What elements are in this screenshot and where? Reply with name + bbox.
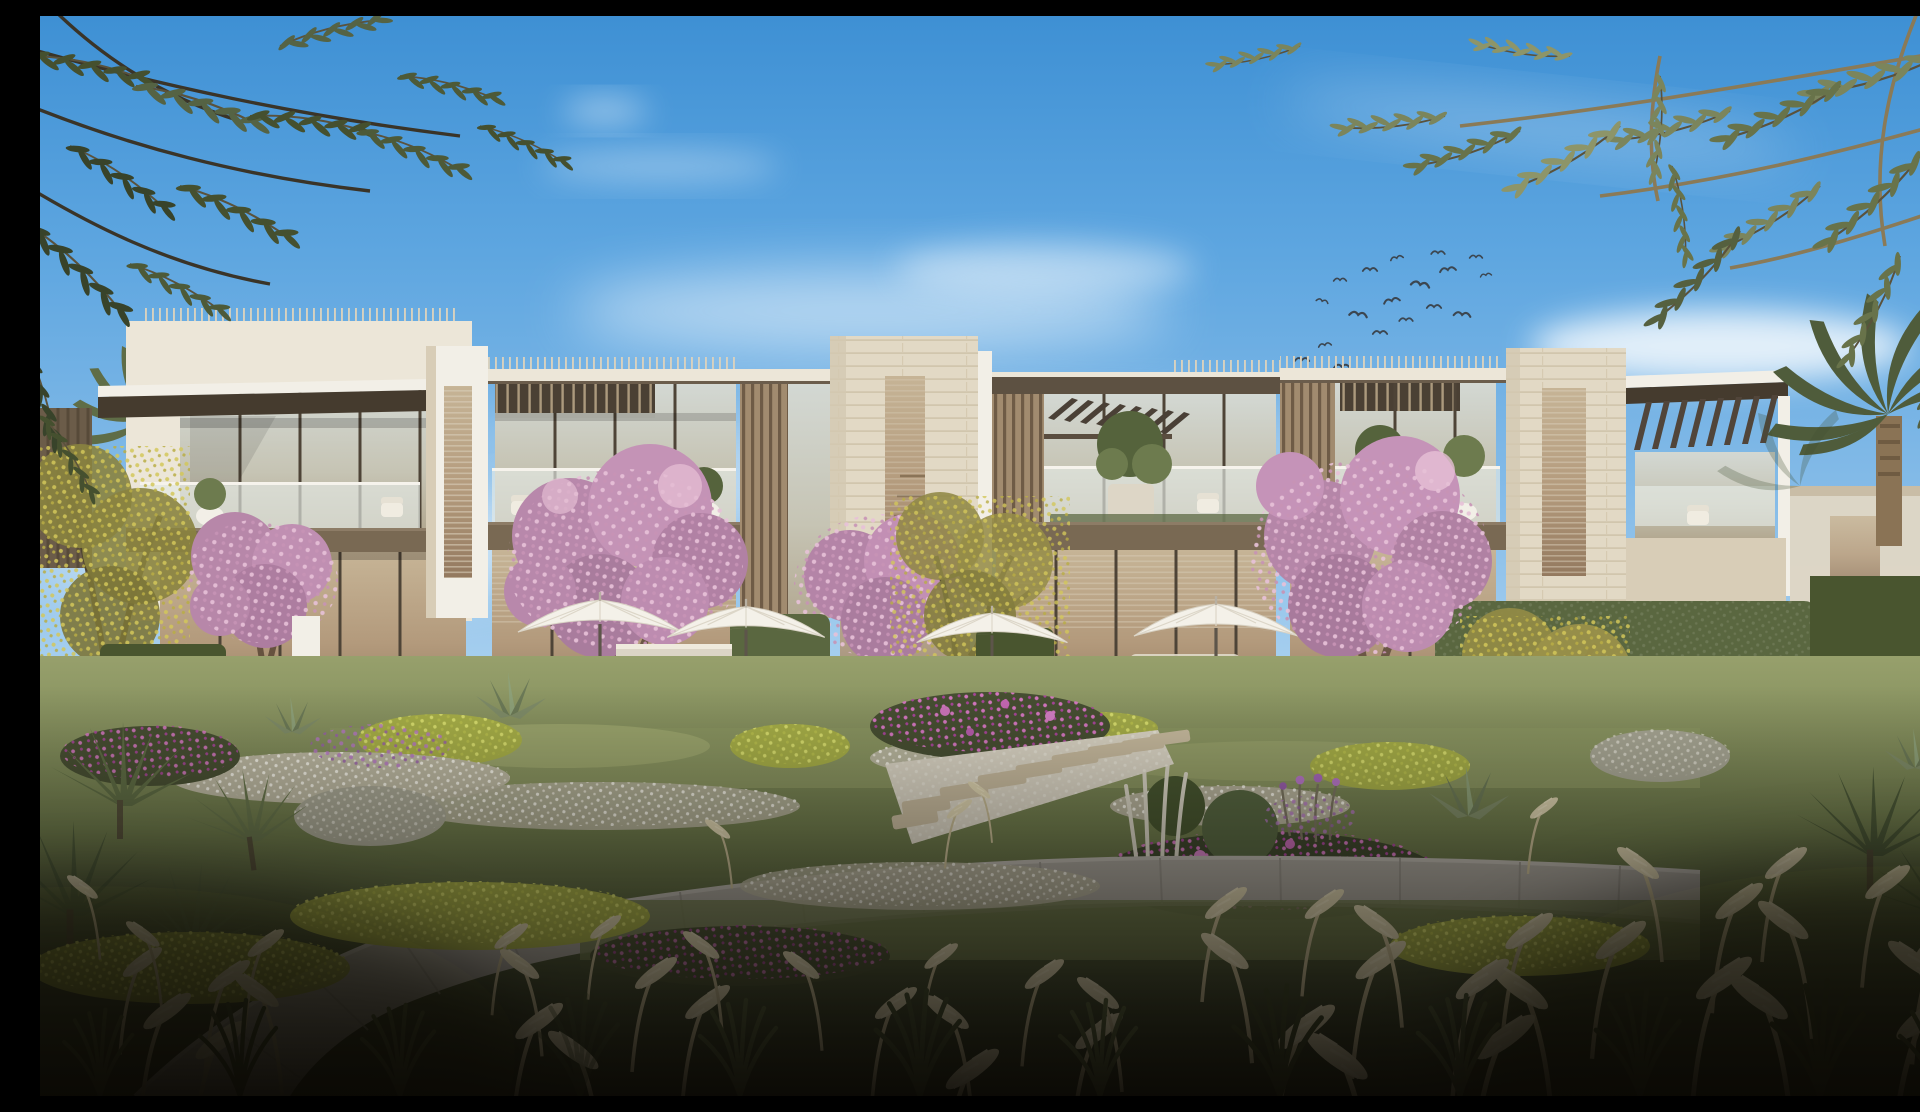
- vignette: [40, 16, 1920, 1096]
- townhouse-garden-render: [40, 16, 1920, 1096]
